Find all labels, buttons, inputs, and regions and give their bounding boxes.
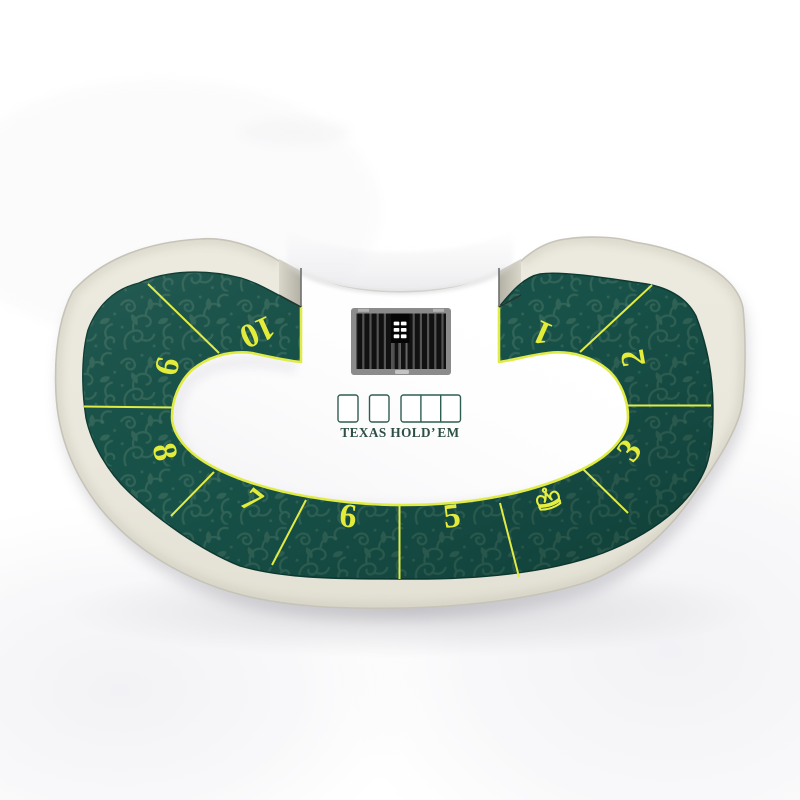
svg-text:TEXAS HOLD’ EM: TEXAS HOLD’ EM [340, 425, 459, 440]
